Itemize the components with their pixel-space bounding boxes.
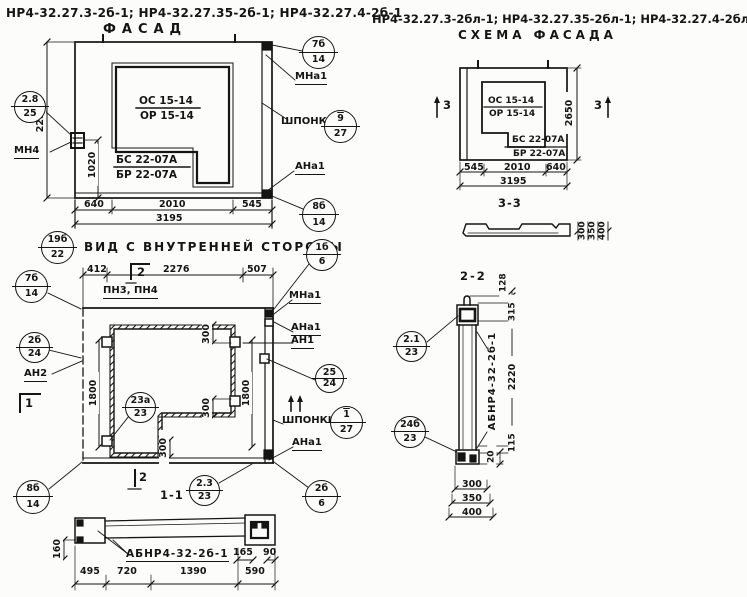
mark-br: БР 22-07А — [116, 170, 177, 181]
dim-inner-412: 412 — [87, 265, 107, 275]
label-an2: АН2 — [24, 369, 47, 382]
title-inner-view: ВИД С ВНУТРЕННЕЙ СТОРОНЫ — [84, 241, 344, 254]
balloon-23-23: 2.3 23 — [189, 475, 220, 506]
dim-11-720: 720 — [117, 567, 137, 577]
balloon-7b-14-inner: 7б 14 — [15, 270, 48, 303]
balloon-top: 25 — [323, 368, 336, 378]
blueprint-sheet: НР4-32.27.3-2б-1; НР4-32.27.35-2б-1; НР4… — [0, 0, 747, 597]
mark-or-scheme: ОР 15-14 — [489, 110, 535, 119]
dim-scheme-2650: 2650 — [565, 92, 575, 134]
dim-inner-507: 507 — [247, 265, 267, 275]
label-ana1-facade: АНа1 — [295, 162, 325, 175]
label-an1: АН1 — [291, 336, 314, 349]
dim-facade-total: 3195 — [156, 214, 182, 224]
balloon-shponki-inner: 1 27 — [330, 406, 363, 439]
mark-os-scheme: ОС 15-14 — [488, 97, 534, 106]
balloon-24b-23: 24б 23 — [394, 416, 426, 448]
section-label-1-1: 1-1 — [160, 489, 184, 501]
dim-scheme-640: 640 — [546, 163, 566, 173]
dim-facade-640: 640 — [84, 200, 104, 210]
balloon-7b-14-facade: 7б 14 — [302, 36, 335, 69]
balloon-top: 2.3 — [196, 479, 213, 489]
label-pn3-pn4: ПН3, ПН4 — [103, 286, 158, 299]
balloon-23a-23: 23а 23 — [125, 392, 156, 423]
label-mn4: МН4 — [14, 146, 39, 159]
balloon-top: 7б — [312, 40, 325, 50]
dim-11-495: 495 — [80, 567, 100, 577]
section-marker-3-left: 3 — [443, 99, 451, 111]
dim-22-350: 350 — [462, 494, 482, 504]
dim-11-160: 160 — [53, 531, 63, 567]
balloon-shponki-facade: 9 27 — [324, 110, 357, 143]
balloon-top: 2.8 — [22, 95, 39, 105]
balloon-top: 9 — [337, 114, 344, 124]
balloon-bottom: 24 — [28, 349, 41, 359]
mark-abnr-22: АБНР4-32-2б-1 — [488, 343, 499, 431]
dim-11-90: 90 — [263, 548, 276, 558]
section-marker-2-top: 2 — [137, 266, 145, 278]
balloon-25-24: 25 24 — [315, 364, 344, 393]
balloon-bottom: 6 — [319, 257, 326, 267]
dim-11-590: 590 — [245, 567, 265, 577]
title-scheme: СХЕМА ФАСАДА — [458, 29, 617, 42]
mark-bs: БС 22-07А — [116, 155, 177, 166]
balloon-top: 2.1 — [403, 335, 420, 345]
dim-inner-2276: 2276 — [163, 265, 189, 275]
balloon-bottom: 23 — [403, 434, 416, 444]
dim-inner-300-top: 300 — [202, 316, 212, 352]
balloon-top: 24б — [400, 420, 420, 430]
balloon-2b-24: 2б 24 — [19, 332, 50, 363]
balloon-bottom: 14 — [312, 55, 325, 65]
balloon-bottom: 6 — [318, 499, 325, 509]
dim-facade-545: 545 — [242, 200, 262, 210]
drawing-lines — [0, 0, 747, 597]
balloon-top: 2б — [315, 484, 328, 494]
balloon-bottom: 22 — [51, 250, 64, 260]
dim-scheme-545: 545 — [464, 163, 484, 173]
section-label-2-2: 2-2 — [460, 270, 487, 282]
balloon-top: 8б — [26, 484, 39, 494]
title-right-marks: НР4-32.27.3-2бл-1; НР4-32.27.35-2бл-1; Н… — [372, 13, 747, 25]
label-ana1-inner-bottom: АНа1 — [292, 438, 322, 451]
dim-facade-1020: 1020 — [88, 144, 98, 186]
title-left-marks: НР4-32.27.3-2б-1; НР4-32.27.35-2б-1; НР4… — [6, 7, 402, 20]
balloon-bottom: 14 — [25, 289, 38, 299]
section-marker-2-bottom: 2 — [139, 471, 147, 483]
section-label-3-3: 3-3 — [498, 197, 522, 209]
dim-33-400: 400 — [598, 214, 607, 248]
dim-scheme-total: 3195 — [500, 177, 526, 187]
dim-inner-300-mid: 300 — [202, 390, 212, 426]
balloon-21-23: 2.1 23 — [396, 331, 427, 362]
mark-os: ОС 15-14 — [139, 96, 193, 107]
balloon-top: 23а — [131, 396, 151, 406]
balloon-top: 19б — [48, 235, 68, 245]
balloon-top: 2б — [28, 336, 41, 346]
balloon-bottom: 23 — [198, 492, 211, 502]
dim-22-300: 300 — [462, 480, 482, 490]
dim-22-400: 400 — [462, 508, 482, 518]
mark-br-scheme: БР 22-07А — [513, 150, 565, 159]
balloon-top: 1 — [343, 410, 350, 420]
balloon-bottom: 23 — [405, 348, 418, 358]
dim-22-20: 20 — [487, 443, 496, 471]
dim-facade-2010: 2010 — [159, 200, 185, 210]
label-mna1-inner: МНа1 — [289, 291, 321, 304]
title-facade: ФАСАД — [103, 23, 187, 37]
balloon-top: 1б — [315, 243, 328, 253]
dim-11-165: 165 — [233, 548, 253, 558]
balloon-8b-14-facade: 8б 14 — [302, 198, 336, 232]
dim-scheme-2010: 2010 — [504, 163, 530, 173]
balloon-facade-left: 2.8 25 — [14, 91, 46, 123]
balloon-top: 7б — [25, 274, 38, 284]
label-ana1-inner-top: АНа1 — [291, 323, 321, 336]
balloon-bottom: 25 — [23, 109, 36, 119]
dim-inner-1800-left: 1800 — [89, 372, 99, 414]
balloon-19b-22: 19б 22 — [41, 231, 74, 264]
dim-22-2220: 2220 — [508, 356, 518, 398]
mark-bs-scheme: БС 22-07А — [512, 136, 564, 145]
dim-inner-300-bottom: 300 — [159, 430, 169, 466]
dim-22-115: 115 — [508, 426, 517, 460]
mark-abnr-11: АБНР4-32-2б-1 — [126, 549, 229, 562]
dim-22-315: 315 — [508, 295, 517, 329]
balloon-bottom: 14 — [312, 218, 325, 228]
balloon-top: 8б — [312, 202, 325, 212]
mark-or: ОР 15-14 — [140, 111, 194, 122]
balloon-1b-6: 1б 6 — [306, 239, 338, 271]
dim-11-1390: 1390 — [180, 567, 206, 577]
balloon-bottom: 14 — [26, 500, 39, 510]
balloon-bottom: 27 — [334, 129, 347, 139]
section-marker-1: 1 — [25, 397, 33, 409]
balloon-bottom: 27 — [340, 425, 353, 435]
label-mna1-facade: МНа1 — [295, 72, 327, 85]
section-marker-3-right: 3 — [594, 99, 602, 111]
balloon-8b-14-inner: 8б 14 — [16, 480, 50, 514]
balloon-2b-6: 2б 6 — [305, 480, 338, 513]
balloon-bottom: 23 — [134, 409, 147, 419]
dim-inner-1800-right: 1800 — [242, 372, 252, 414]
balloon-bottom: 24 — [323, 379, 336, 389]
